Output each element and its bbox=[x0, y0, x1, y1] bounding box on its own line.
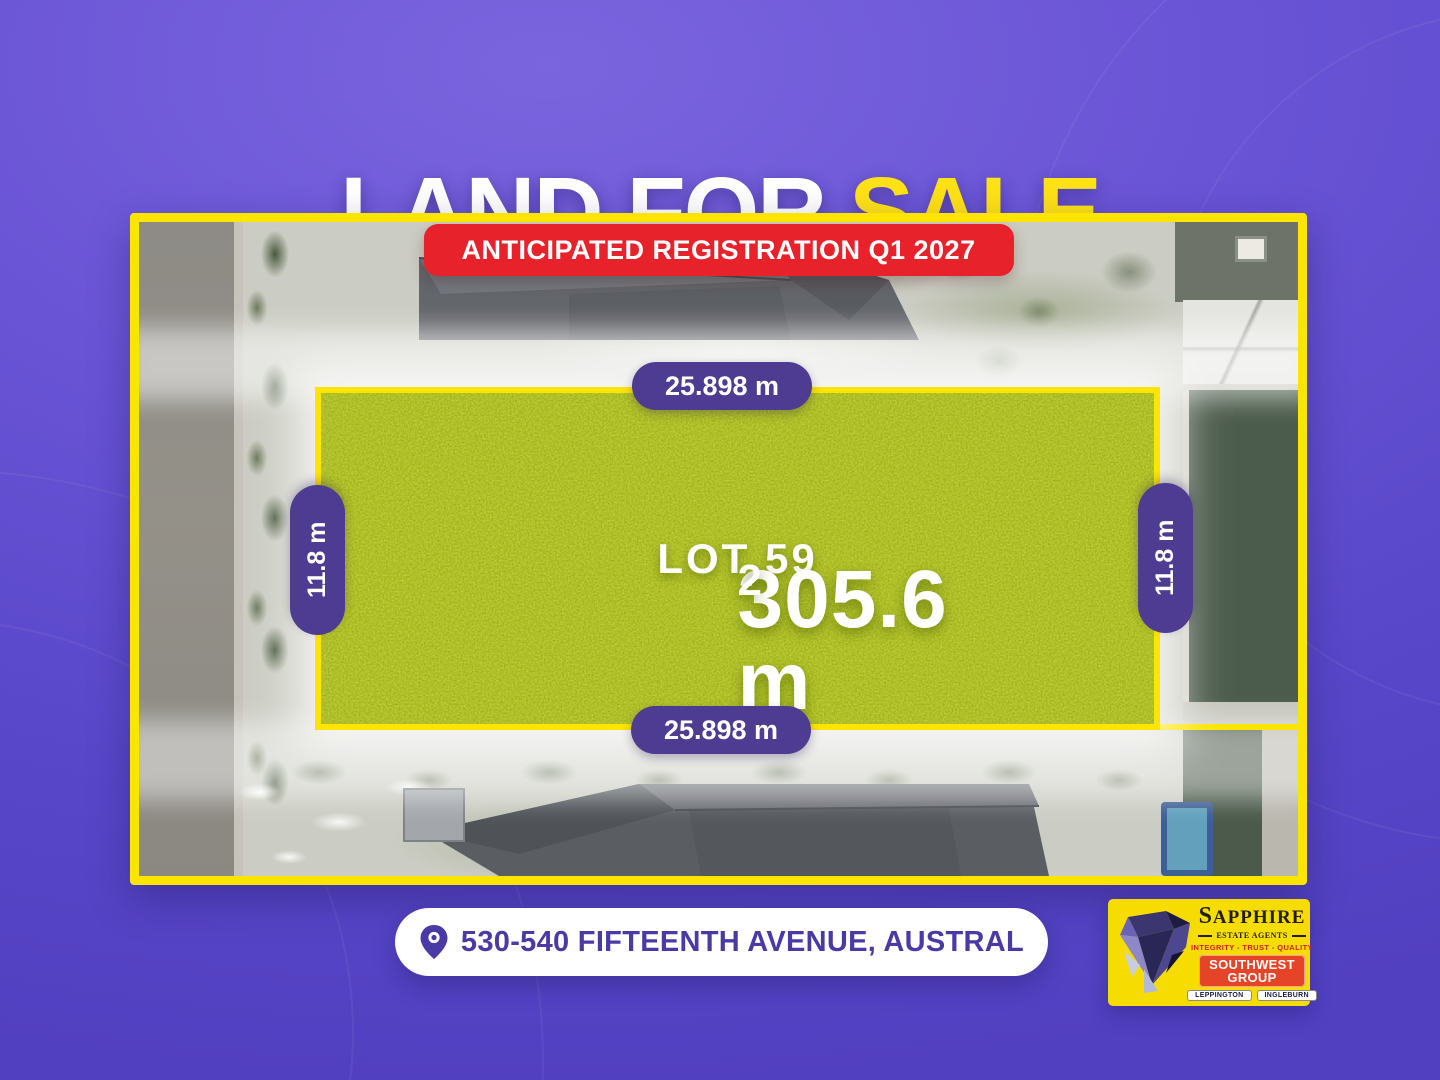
registration-badge: ANTICIPATED REGISTRATION Q1 2027 bbox=[423, 224, 1013, 276]
skylight bbox=[1235, 236, 1267, 262]
sapphire-diamond-icon bbox=[1114, 907, 1196, 999]
group-line2: GROUP bbox=[1209, 971, 1295, 984]
logo-text-column: SAPPHIRE ESTATE AGENTS INTEGRITY - TRUST… bbox=[1198, 904, 1306, 1001]
agency-logo: SAPPHIRE ESTATE AGENTS INTEGRITY - TRUST… bbox=[1108, 899, 1310, 1006]
tagline-rule bbox=[1198, 935, 1212, 937]
tagline-text: ESTATE AGENTS bbox=[1216, 931, 1287, 940]
brand-name: SAPPHIRE bbox=[1199, 904, 1306, 928]
neighbor-house-top-right bbox=[1175, 222, 1298, 302]
office-leppington: LEPPINGTON bbox=[1187, 990, 1251, 1001]
office-pills: LEPPINGTON INGLEBURN bbox=[1187, 990, 1317, 1001]
aerial-photo-frame: LOT 59 305.6 m2 ANTICIPATED REGISTRATION… bbox=[130, 213, 1307, 885]
lot-area-value: 305.6 m bbox=[738, 559, 948, 723]
tagline-rule bbox=[1292, 935, 1306, 937]
location-pin-icon bbox=[419, 924, 449, 960]
lot-label-group: LOT 59 305.6 m2 bbox=[321, 393, 1154, 724]
trampoline bbox=[1161, 802, 1213, 876]
neighbor-lawn-right bbox=[1183, 390, 1298, 702]
dimension-pill-bottom: 25.898 m bbox=[631, 706, 811, 754]
dimension-pill-right: 11.8 m bbox=[1138, 483, 1193, 633]
dimension-pill-left: 11.8 m bbox=[290, 485, 345, 635]
address-pill: 530-540 FIFTEENTH AVENUE, AUSTRAL bbox=[395, 908, 1048, 976]
dimension-pill-top: 25.898 m bbox=[632, 362, 812, 410]
aerial-photo: LOT 59 305.6 m2 ANTICIPATED REGISTRATION… bbox=[139, 222, 1298, 876]
office-ingleburn: INGLEBURN bbox=[1257, 990, 1317, 1001]
land-for-sale-flyer: LAND FORSALE bbox=[0, 0, 1440, 1080]
boundary-line-extension bbox=[1157, 724, 1298, 730]
group-badge: SOUTHWEST GROUP bbox=[1199, 955, 1305, 987]
lot-area-superscript: 2 bbox=[738, 559, 763, 603]
address-text: 530-540 FIFTEENTH AVENUE, AUSTRAL bbox=[461, 926, 1024, 959]
brand-values: INTEGRITY - TRUST - QUALITY bbox=[1191, 943, 1313, 952]
brand-tagline: ESTATE AGENTS bbox=[1198, 931, 1306, 940]
highlighted-lot: LOT 59 305.6 m2 bbox=[315, 387, 1160, 730]
